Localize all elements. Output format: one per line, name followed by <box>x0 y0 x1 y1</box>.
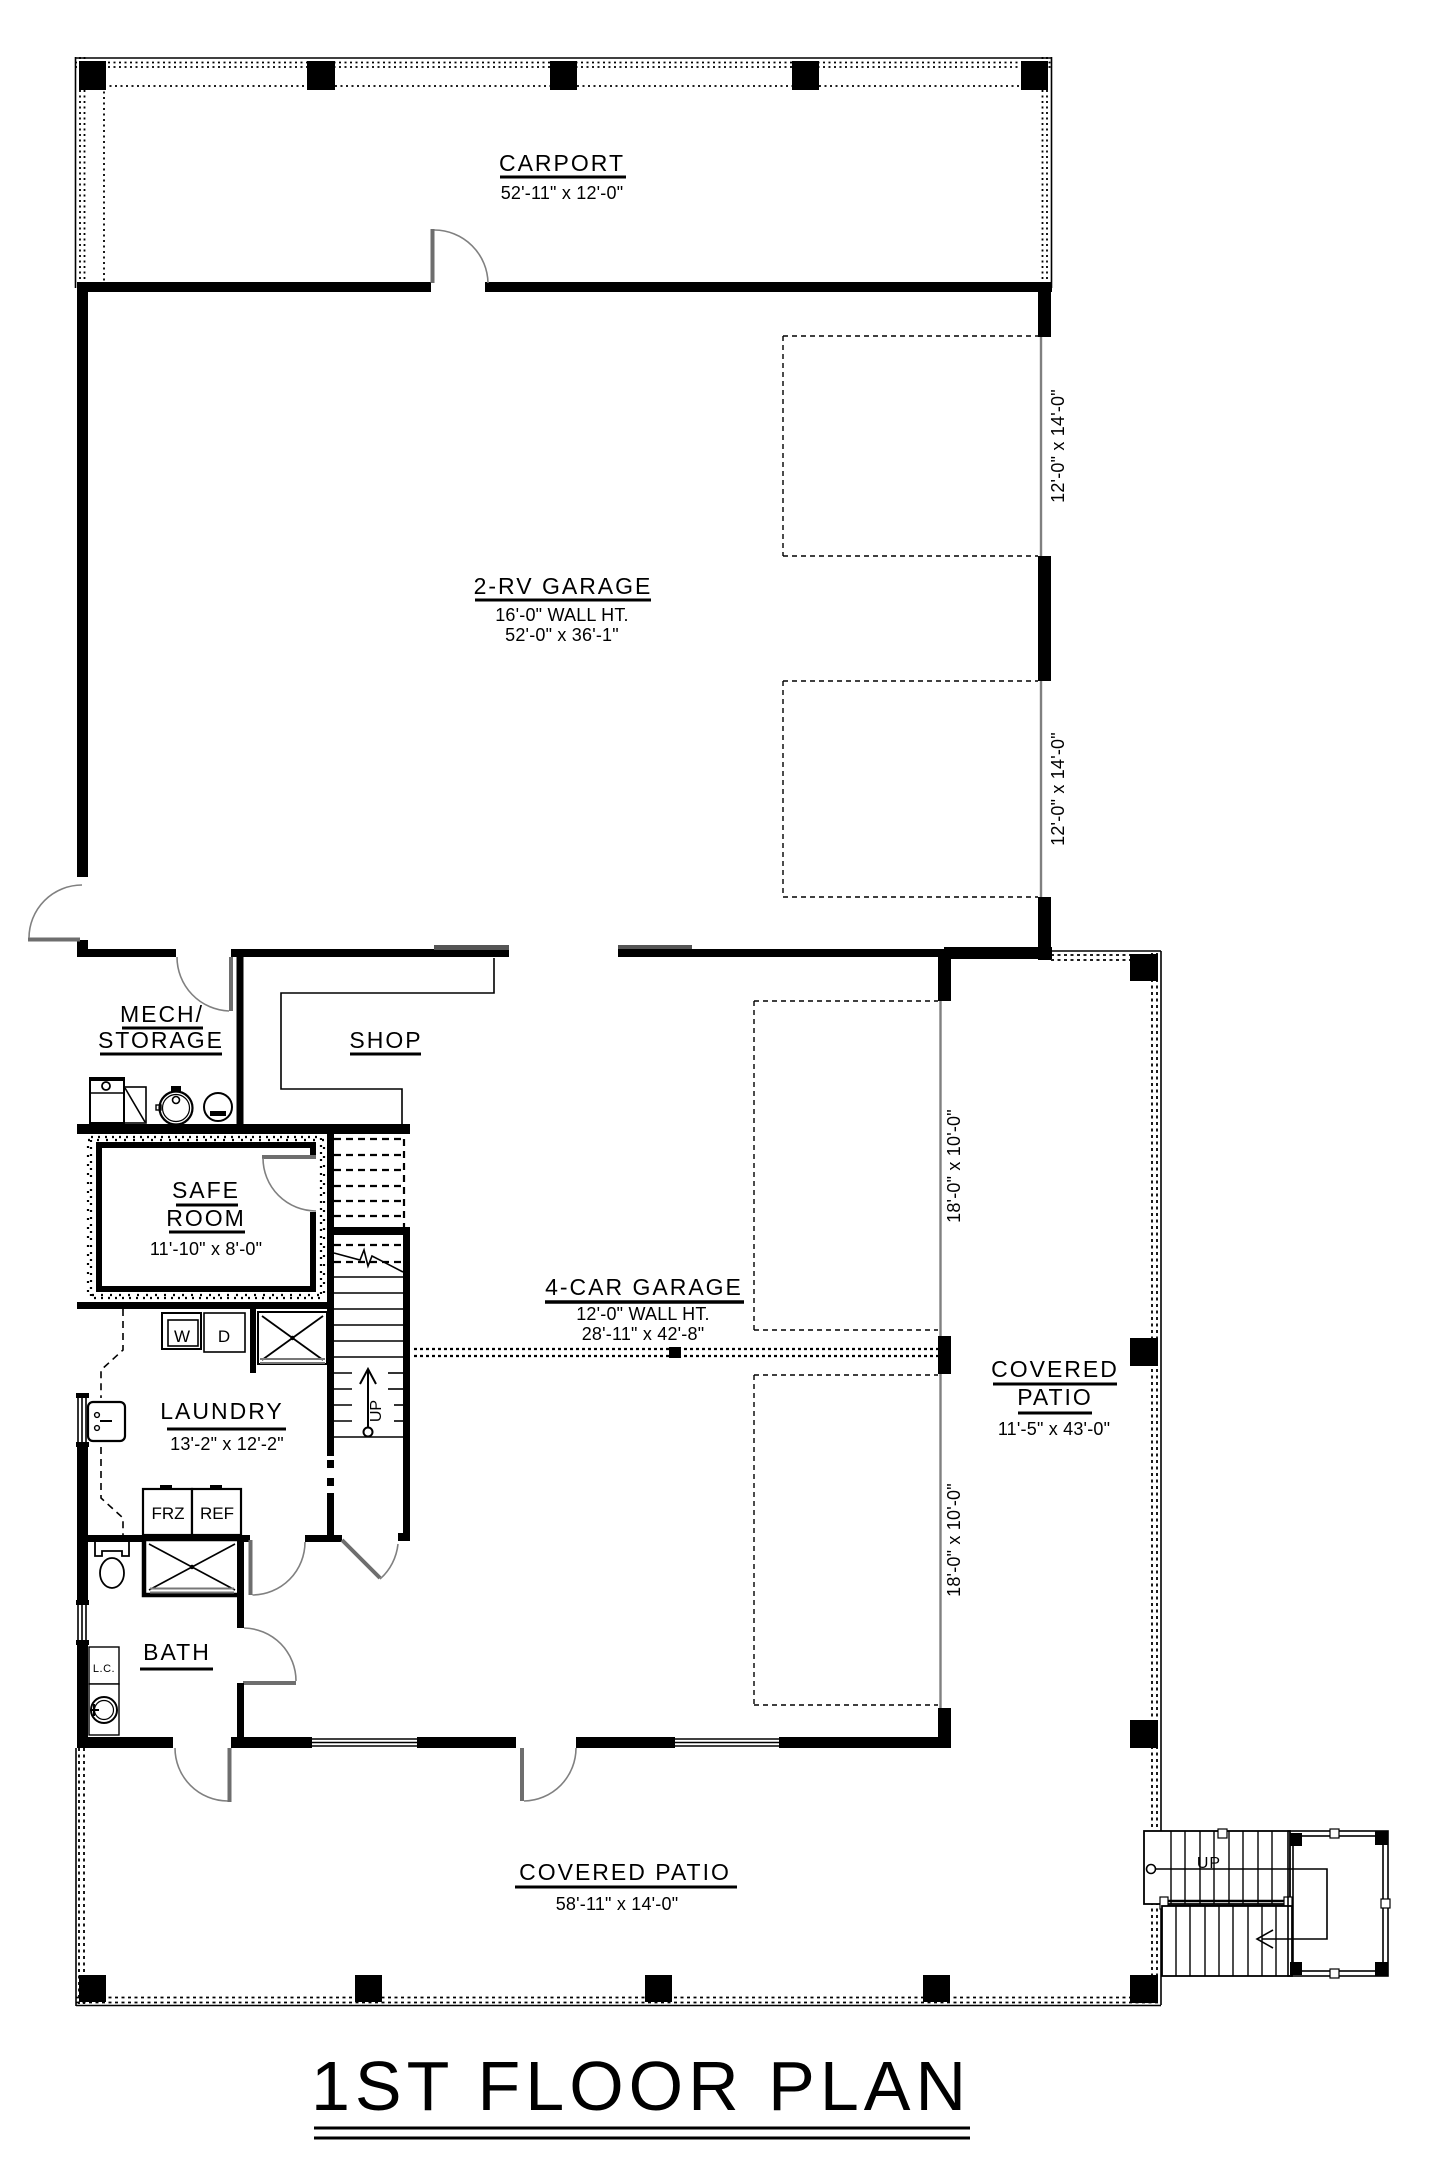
svg-text:18'-0" x 10'-0": 18'-0" x 10'-0" <box>944 1109 964 1223</box>
svg-text:28'-11" x 42'-8": 28'-11" x 42'-8" <box>582 1324 705 1344</box>
svg-text:ROOM: ROOM <box>166 1205 246 1231</box>
svg-text:2-RV GARAGE: 2-RV GARAGE <box>474 573 653 599</box>
svg-text:58'-11" x 14'-0": 58'-11" x 14'-0" <box>556 1894 679 1914</box>
svg-text:FRZ: FRZ <box>151 1504 184 1523</box>
svg-text:COVERED PATIO: COVERED PATIO <box>519 1859 731 1885</box>
svg-text:12'-0" x 14'-0": 12'-0" x 14'-0" <box>1048 389 1068 503</box>
svg-text:4-CAR GARAGE: 4-CAR GARAGE <box>545 1274 743 1300</box>
svg-text:L.C.: L.C. <box>93 1663 115 1675</box>
svg-text:PATIO: PATIO <box>1017 1384 1093 1410</box>
svg-text:UP: UP <box>368 1400 385 1422</box>
svg-text:STORAGE: STORAGE <box>98 1027 224 1053</box>
svg-text:CARPORT: CARPORT <box>499 150 625 176</box>
svg-text:18'-0" x 10'-0": 18'-0" x 10'-0" <box>944 1483 964 1597</box>
svg-text:52'-11" x 12'-0": 52'-11" x 12'-0" <box>501 183 624 203</box>
svg-text:LAUNDRY: LAUNDRY <box>160 1398 284 1424</box>
svg-text:W: W <box>174 1327 190 1346</box>
svg-text:D: D <box>218 1327 230 1346</box>
svg-text:SAFE: SAFE <box>172 1177 240 1203</box>
svg-text:16'-0" WALL HT.: 16'-0" WALL HT. <box>495 605 629 625</box>
svg-text:12'-0" WALL HT.: 12'-0" WALL HT. <box>576 1304 710 1324</box>
svg-text:COVERED: COVERED <box>991 1356 1119 1382</box>
svg-text:MECH/: MECH/ <box>120 1001 204 1027</box>
svg-text:1ST FLOOR PLAN: 1ST FLOOR PLAN <box>311 2047 971 2125</box>
svg-text:52'-0" x 36'-1": 52'-0" x 36'-1" <box>505 625 619 645</box>
svg-text:11'-10" x 8'-0": 11'-10" x 8'-0" <box>150 1239 262 1259</box>
svg-text:12'-0" x 14'-0": 12'-0" x 14'-0" <box>1048 732 1068 846</box>
svg-text:13'-2" x 12'-2": 13'-2" x 12'-2" <box>170 1434 284 1454</box>
svg-text:REF: REF <box>200 1504 234 1523</box>
svg-text:SHOP: SHOP <box>349 1027 422 1053</box>
svg-text:11'-5" x 43'-0": 11'-5" x 43'-0" <box>998 1419 1110 1439</box>
svg-text:BATH: BATH <box>143 1639 211 1665</box>
